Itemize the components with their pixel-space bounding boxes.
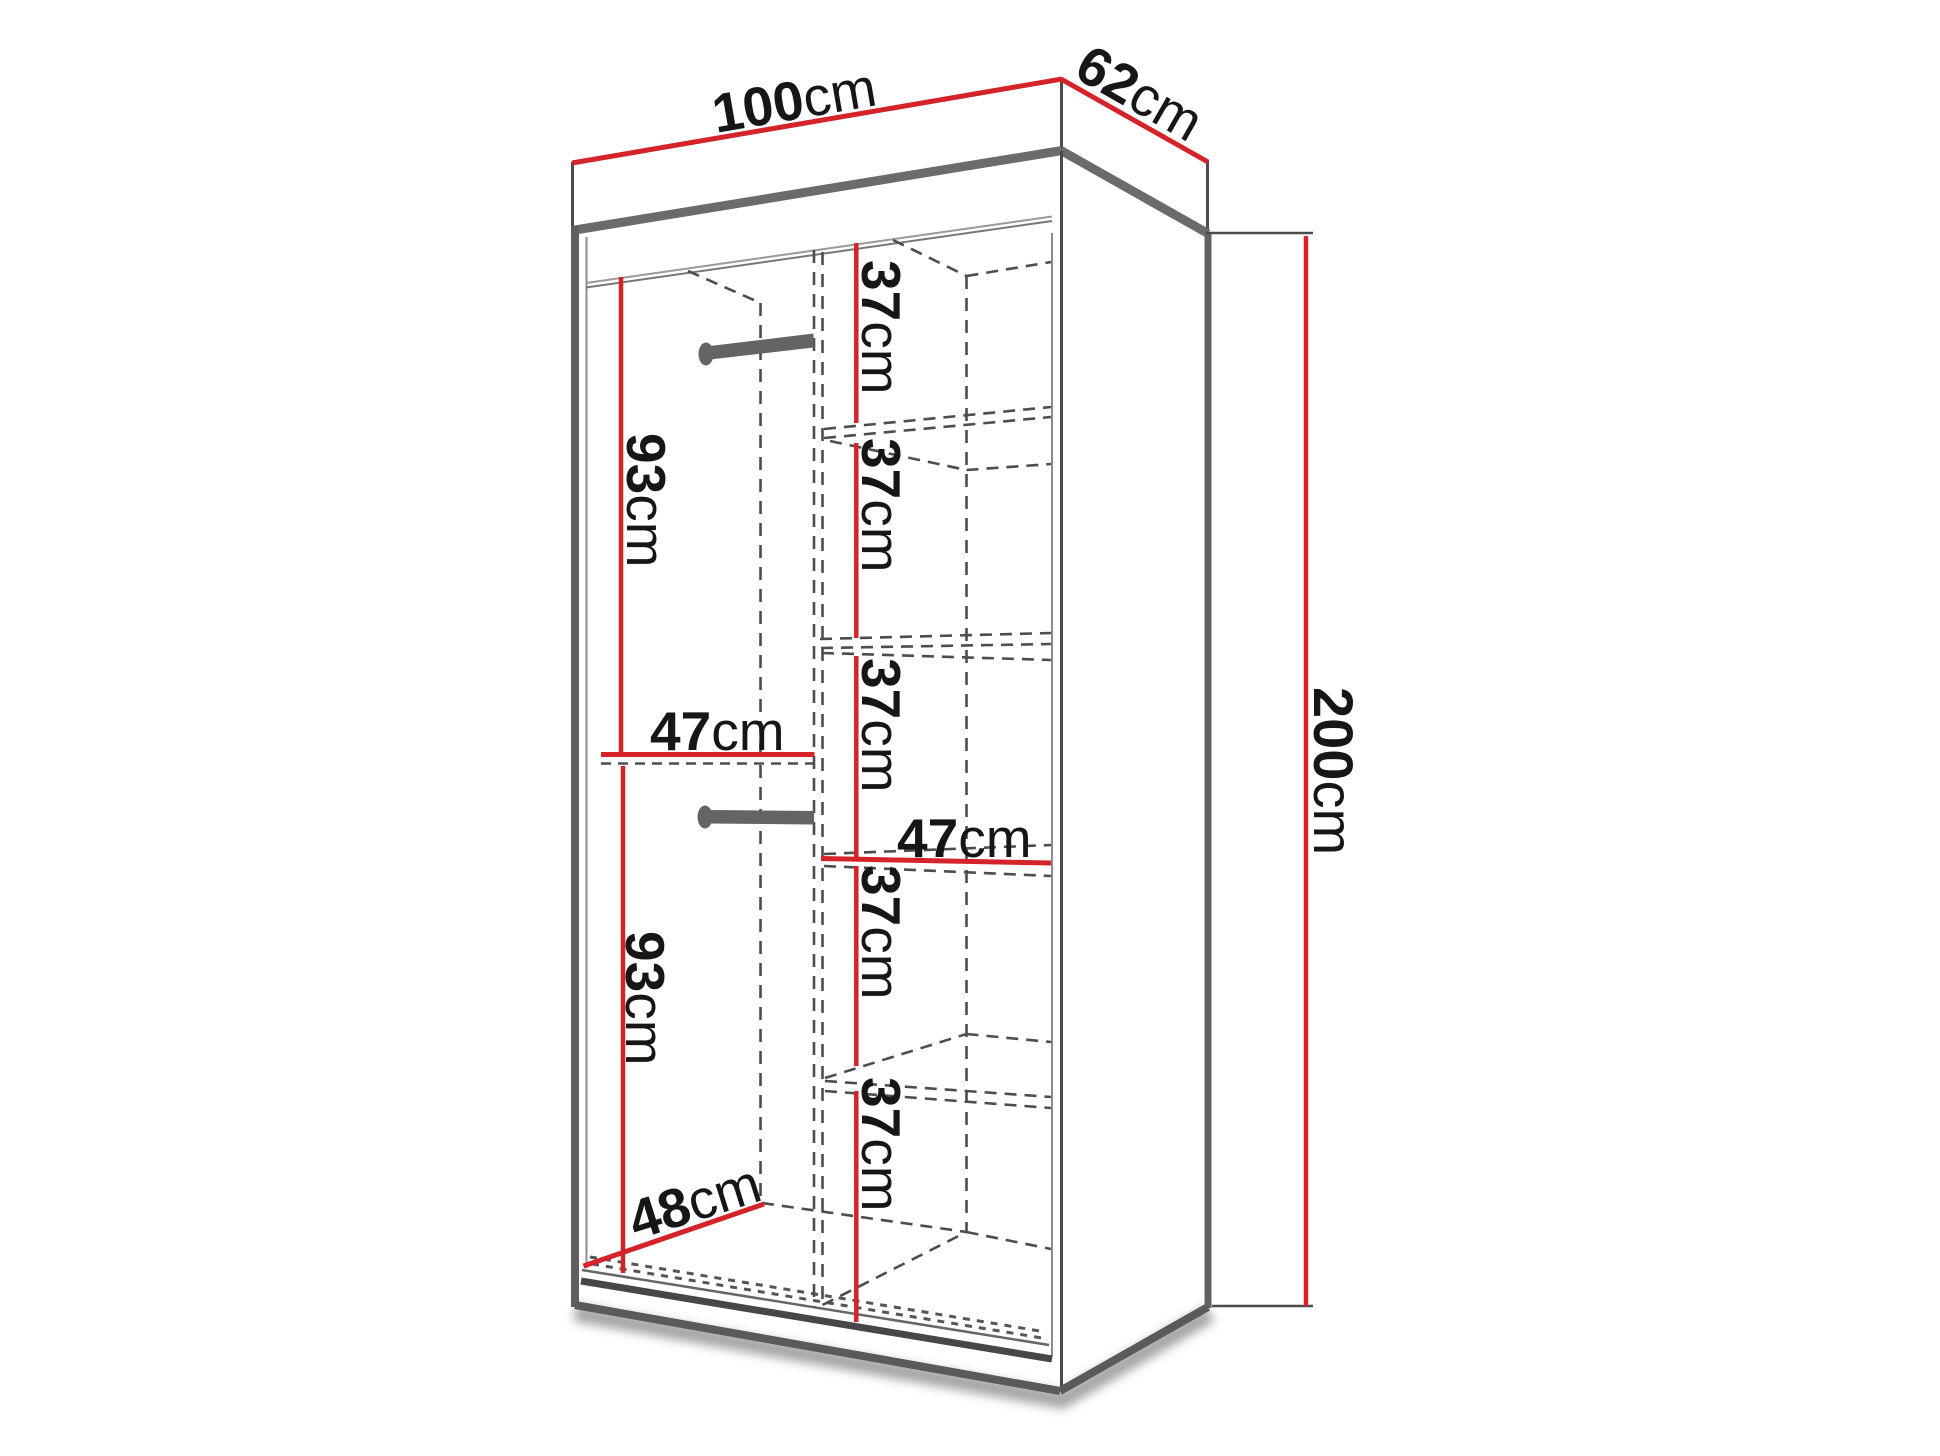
svg-text:37cm: 37cm	[850, 438, 912, 573]
svg-text:37cm: 37cm	[850, 865, 912, 1000]
svg-text:93cm: 93cm	[614, 931, 676, 1066]
svg-text:47cm: 47cm	[650, 700, 785, 762]
svg-text:100cm: 100cm	[707, 56, 880, 145]
svg-text:37cm: 37cm	[850, 1077, 912, 1212]
svg-text:47cm: 47cm	[897, 807, 1032, 869]
svg-text:200cm: 200cm	[1302, 687, 1365, 855]
svg-text:62cm: 62cm	[1066, 33, 1214, 154]
svg-text:93cm: 93cm	[615, 433, 677, 568]
svg-text:37cm: 37cm	[850, 658, 912, 793]
svg-text:37cm: 37cm	[850, 260, 912, 395]
svg-text:48cm: 48cm	[621, 1152, 768, 1252]
